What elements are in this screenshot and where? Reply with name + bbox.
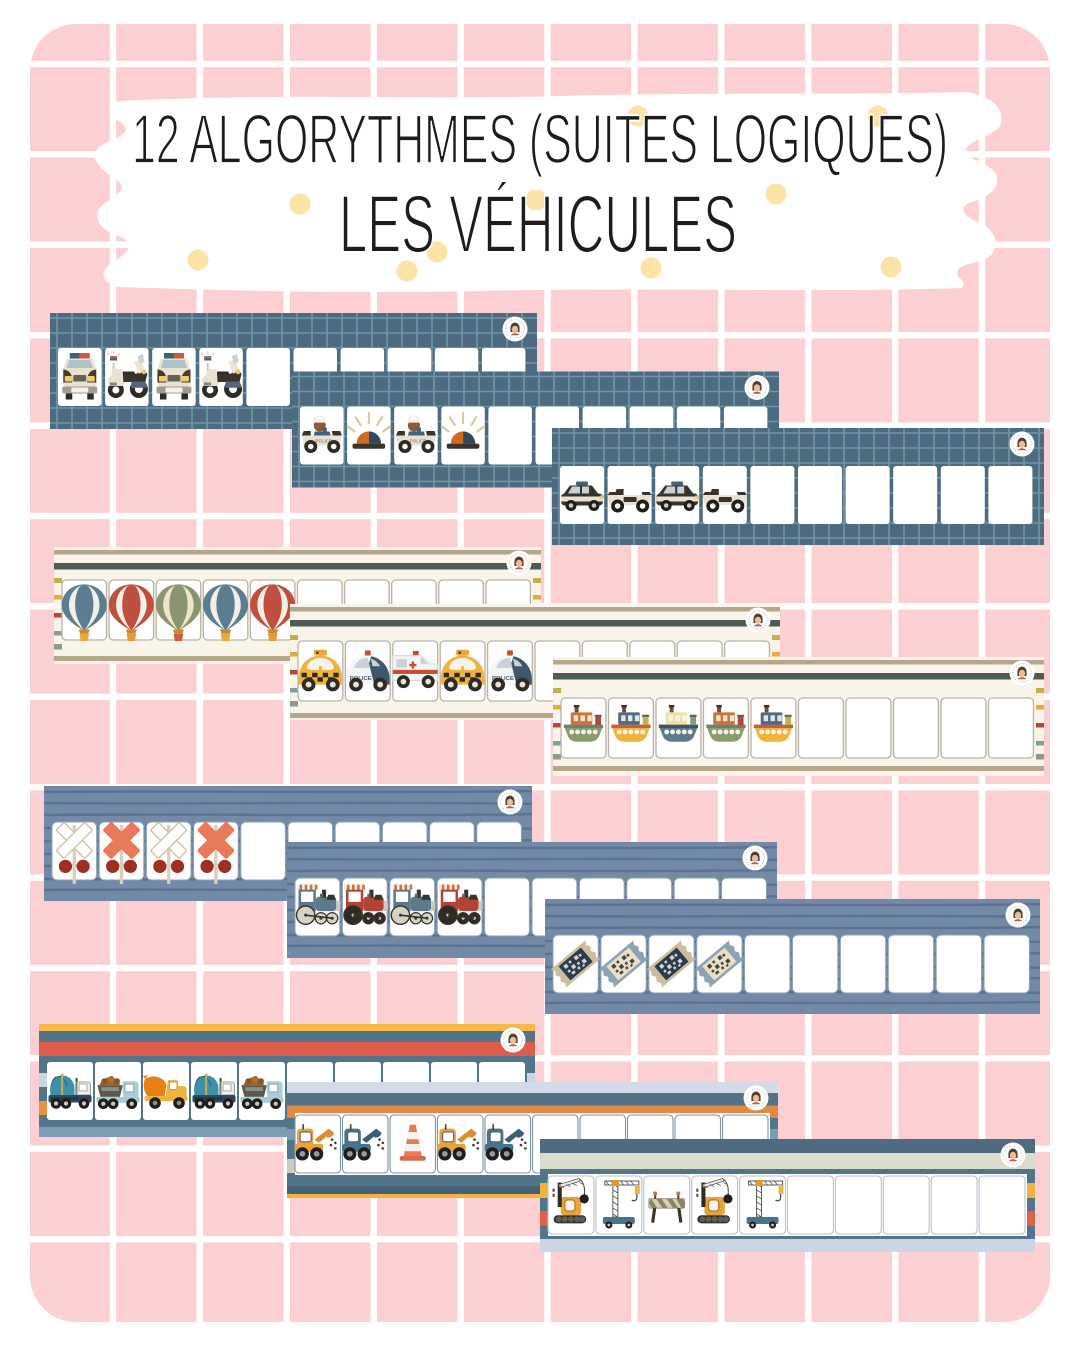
svg-text:LES VÉHICULES: LES VÉHICULES [339, 179, 737, 270]
svg-text:12 ALGORYTHMES (SUITES LOGIQUE: 12 ALGORYTHMES (SUITES LOGIQUES) [132, 100, 948, 178]
